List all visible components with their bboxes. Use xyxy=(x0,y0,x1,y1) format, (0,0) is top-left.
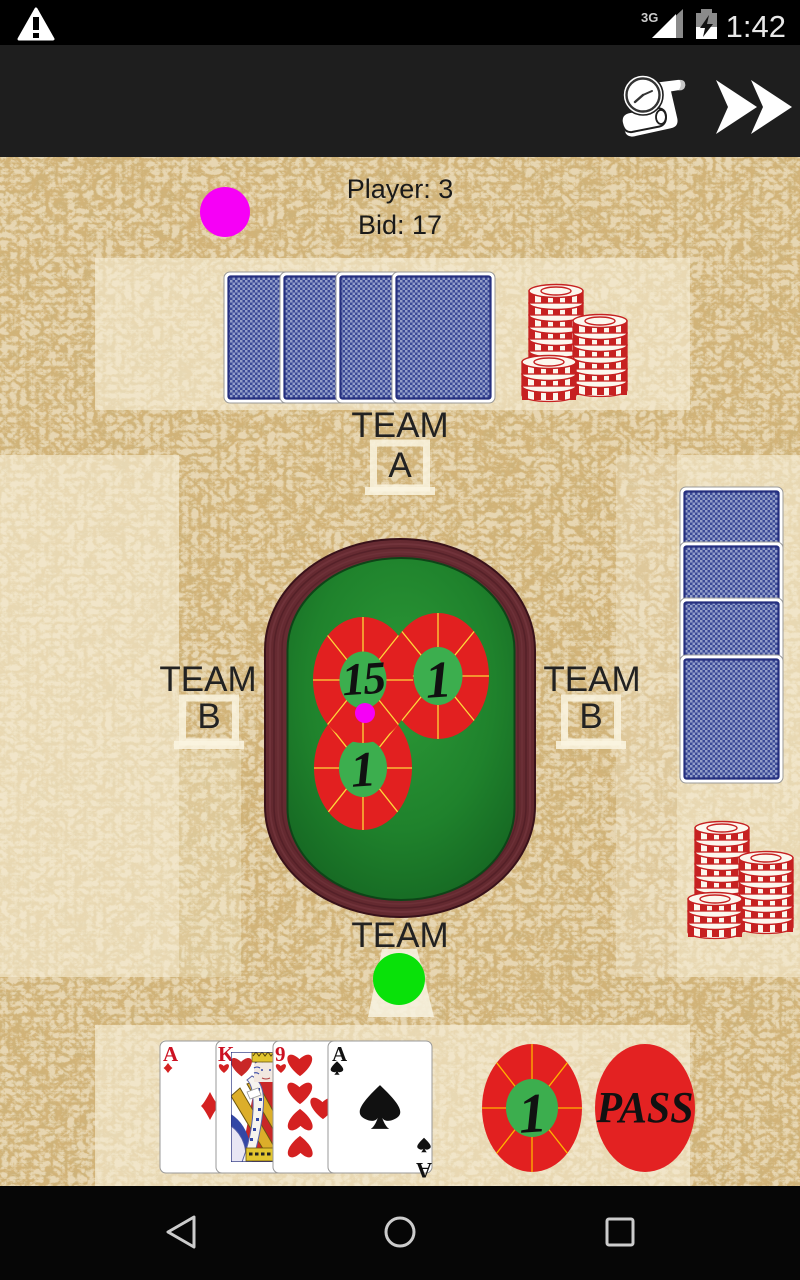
svg-text:3G: 3G xyxy=(641,10,658,25)
svg-text:A: A xyxy=(332,1042,348,1066)
svg-text:TEAM: TEAM xyxy=(351,406,448,445)
svg-text:A: A xyxy=(163,1042,179,1066)
svg-text:1:42: 1:42 xyxy=(726,9,786,44)
svg-text:B: B xyxy=(197,697,220,736)
svg-text:TEAM: TEAM xyxy=(159,660,256,699)
svg-text:1: 1 xyxy=(516,1082,548,1146)
svg-text:1: 1 xyxy=(349,740,378,798)
svg-text:A: A xyxy=(388,446,412,485)
svg-text:TEAM: TEAM xyxy=(543,660,640,699)
svg-text:B: B xyxy=(579,697,602,736)
svg-text:15: 15 xyxy=(340,652,386,706)
svg-text:PASS: PASS xyxy=(596,1083,694,1132)
svg-text:9: 9 xyxy=(275,1042,286,1066)
svg-text:Bid: 17: Bid: 17 xyxy=(358,210,442,240)
svg-text:1: 1 xyxy=(423,651,453,710)
svg-text:Player: 3: Player: 3 xyxy=(347,174,454,204)
svg-text:A: A xyxy=(416,1158,432,1183)
